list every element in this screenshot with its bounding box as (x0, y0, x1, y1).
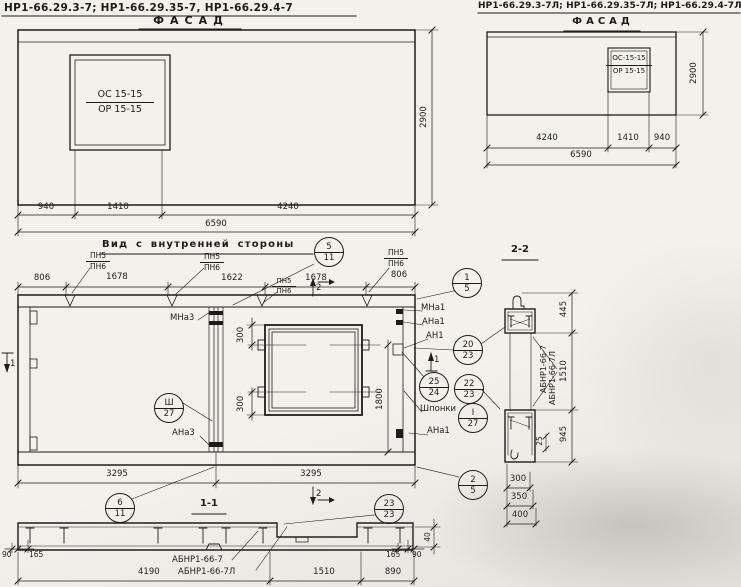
dim-945: 945 (559, 414, 569, 454)
window-mark-bottom: ОР 15-15 (606, 66, 652, 76)
facade-left-window-mark: ОС 15-15 ОР 15-15 (86, 90, 154, 116)
dim-300-top: 300 (236, 315, 246, 355)
dim-90-left: 90 (2, 551, 12, 559)
anchor-bottom: ПН6 (384, 259, 408, 268)
facade-right-view-label: ФАСАД (564, 17, 642, 27)
dim-4190: 4190 (138, 568, 160, 577)
anchor-top: ПН5 (272, 278, 296, 287)
callout-top: I (459, 404, 487, 419)
section-mark-1-right: 1 (434, 356, 439, 365)
mark-abnr-l: АБНР1-66-7Л (178, 568, 235, 577)
anchor-label-pn: ПН5 ПН6 (86, 252, 110, 270)
dim-806: 806 (26, 274, 58, 283)
middle-rib (209, 307, 223, 452)
callout-1-5: 1 5 (452, 268, 482, 298)
facade-left-title: НР1-66.29.3-7; НР1-66.29.35-7, НР1-66.29… (4, 3, 293, 14)
section-2-2-title: 2-2 (504, 245, 536, 255)
label-mna1: МНа1 (421, 304, 445, 313)
callout-bottom: 27 (459, 419, 487, 432)
facade-left-linework (2, 16, 438, 236)
inner-view-panel (18, 295, 415, 465)
callout-bottom: 23 (375, 510, 403, 523)
callout-I-27: I 27 (458, 403, 488, 433)
dim-4240: 4240 (269, 203, 307, 212)
anchor-label-pn: ПН5 ПН6 (200, 253, 224, 271)
dim-1510-vert: 1510 (559, 351, 569, 391)
dim-1678: 1678 (99, 273, 135, 282)
callout-top: 2 (459, 471, 487, 486)
anchor-top: ПН5 (86, 252, 110, 262)
dim-3295-left: 3295 (98, 470, 136, 479)
dim-890: 890 (378, 568, 408, 577)
callout-top: 6 (106, 494, 134, 509)
dim-3295-right: 3295 (292, 470, 330, 479)
dim-1410: 1410 (99, 203, 137, 212)
anchor-bottom: ПН6 (200, 263, 224, 272)
dim-165-right: 165 (386, 551, 400, 559)
mark-abnr-l: АБНР1-66-7Л (548, 341, 558, 415)
callout-bottom: 5 (459, 486, 487, 499)
callout-leaders (132, 264, 505, 524)
inner-view-window (265, 325, 362, 415)
anchor-bottom: ПН6 (272, 287, 296, 295)
dim-165-left: 165 (29, 551, 43, 559)
callout-6-11: 6 11 (105, 493, 135, 523)
rebar-symbols (26, 528, 404, 543)
section-mark-1-left: 1 (10, 360, 15, 369)
section-1-1-title: 1-1 (192, 499, 226, 509)
dim-300-stack: 300 (505, 475, 531, 484)
anchor-top: ПН5 (384, 249, 408, 259)
mark-abnr: АБНР1-66-7 (172, 556, 223, 565)
facade-right-title: НР1-66.29.3-7Л; НР1-66.29.35-7Л; НР1-66.… (478, 2, 741, 11)
dim-40: 40 (423, 527, 433, 547)
callout-bottom: 27 (155, 409, 183, 422)
dim-4240: 4240 (528, 134, 566, 143)
callout-22-23: 22 23 (454, 374, 484, 404)
facade-left-panel (18, 30, 415, 205)
dim-90-right: 90 (412, 551, 422, 559)
section-mark-2-bottom: 2 (316, 490, 321, 499)
label-ana3: АНа3 (172, 429, 195, 438)
callout-bottom: 23 (454, 351, 482, 364)
label-an1: АН1 (426, 332, 444, 341)
callout-bottom: 11 (106, 509, 134, 522)
dim-350-stack: 350 (506, 493, 532, 502)
facade-right-linework (478, 13, 740, 168)
dim-2900: 2900 (419, 97, 429, 137)
window-mark-top: ОС-15-15 (606, 55, 652, 66)
callout-5-11: 5 11 (314, 237, 344, 267)
callout-top: 20 (454, 336, 482, 351)
dim-2900: 2900 (689, 53, 699, 93)
callout-bottom: 23 (455, 390, 483, 403)
anchor-bottom: ПН6 (86, 262, 110, 271)
dim-300-bottom: 300 (236, 384, 246, 424)
callout-bottom: 11 (315, 253, 343, 266)
facade-left-view-label: ФАСАД (140, 15, 242, 26)
callout-top: 22 (455, 375, 483, 390)
dim-940: 940 (28, 203, 64, 212)
callout-top: 1 (453, 269, 481, 284)
facade-right-window-mark: ОС-15-15 ОР 15-15 (606, 55, 652, 75)
dim-806: 806 (383, 271, 415, 280)
callout-top: Ш (155, 394, 183, 409)
window-mark-top: ОС 15-15 (86, 90, 154, 103)
callout-25-24: 25 24 (419, 372, 449, 402)
inner-view-title: Вид с внутренней стороны (102, 240, 295, 250)
dim-1800: 1800 (375, 379, 385, 419)
anchor-top: ПН5 (200, 253, 224, 263)
anchor-label-pn: ПН5 ПН6 (384, 249, 408, 267)
callout-top: 25 (420, 373, 448, 388)
drawing-sheet: НР1-66.29.3-7; НР1-66.29.35-7, НР1-66.29… (0, 0, 741, 587)
callout-23-23: 23 23 (374, 494, 404, 524)
callout-2-5: 2 5 (458, 470, 488, 500)
dim-1410: 1410 (610, 134, 646, 143)
callout-bottom: 5 (453, 284, 481, 297)
dim-1678: 1678 (298, 274, 334, 283)
dim-1622: 1622 (214, 274, 250, 283)
callout-top: 5 (315, 238, 343, 253)
label-shponki: Шпонки (420, 405, 456, 414)
callout-bottom: 24 (420, 388, 448, 401)
anchor-label-pn: ПН5 ПН6 (272, 278, 296, 295)
label-ana1: АНа1 (422, 318, 445, 327)
dim-6590: 6590 (196, 220, 236, 229)
label-ana1-bottom: АНа1 (427, 427, 450, 436)
callout-20-23: 20 23 (453, 335, 483, 365)
dim-25: 25 (535, 431, 545, 451)
dim-1510: 1510 (308, 568, 340, 577)
dim-400-stack: 400 (507, 511, 533, 520)
dim-445: 445 (559, 289, 569, 329)
callout-top: 23 (375, 495, 403, 510)
window-mark-bottom: ОР 15-15 (86, 103, 154, 115)
dim-6590: 6590 (561, 151, 601, 160)
dim-940: 940 (646, 134, 678, 143)
label-mna3: МНа3 (170, 314, 194, 323)
section-mark-2-top: 2 (316, 284, 321, 293)
callout-sh-27: Ш 27 (154, 393, 184, 423)
